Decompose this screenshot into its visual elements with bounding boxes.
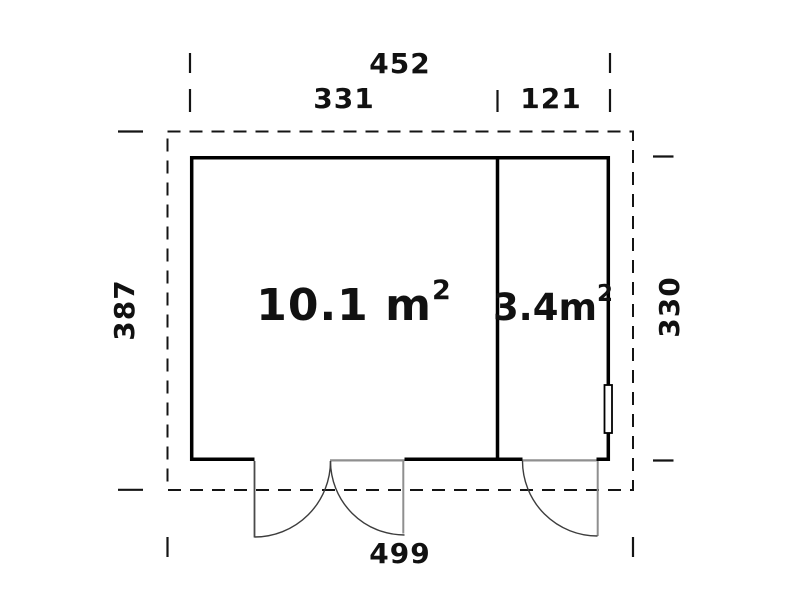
main-room-area-label: 10.1 m2 bbox=[256, 275, 452, 331]
dim-label-left-height: 387 bbox=[108, 279, 141, 340]
dim-label-right-height: 330 bbox=[653, 276, 686, 337]
main-room-area-superscript: 2 bbox=[432, 275, 452, 306]
main-room-area-value: 10.1 m bbox=[256, 280, 432, 331]
dim-label-right-room-width: 121 bbox=[520, 82, 581, 115]
dim-label-left-room-width: 331 bbox=[313, 82, 374, 115]
double-door-left-swing-arc bbox=[255, 461, 331, 537]
dim-label-overall-width: 452 bbox=[369, 47, 430, 80]
side-room-area-value: 3.4m bbox=[493, 286, 597, 329]
side-room-area-label: 3.4m2 bbox=[493, 281, 613, 329]
dim-label-bottom-width: 499 bbox=[369, 537, 430, 570]
single-door-swing-arc bbox=[523, 461, 598, 536]
side-room-area-superscript: 2 bbox=[597, 281, 613, 307]
floor-plan-canvas: 452 331 121 387 330 499 10.1 m2 3.4m2 bbox=[0, 0, 800, 600]
floor-plan-drawing: 452 331 121 387 330 499 10.1 m2 3.4m2 bbox=[0, 0, 800, 600]
window-marker bbox=[605, 385, 613, 433]
double-door-right-swing-arc bbox=[331, 461, 405, 535]
